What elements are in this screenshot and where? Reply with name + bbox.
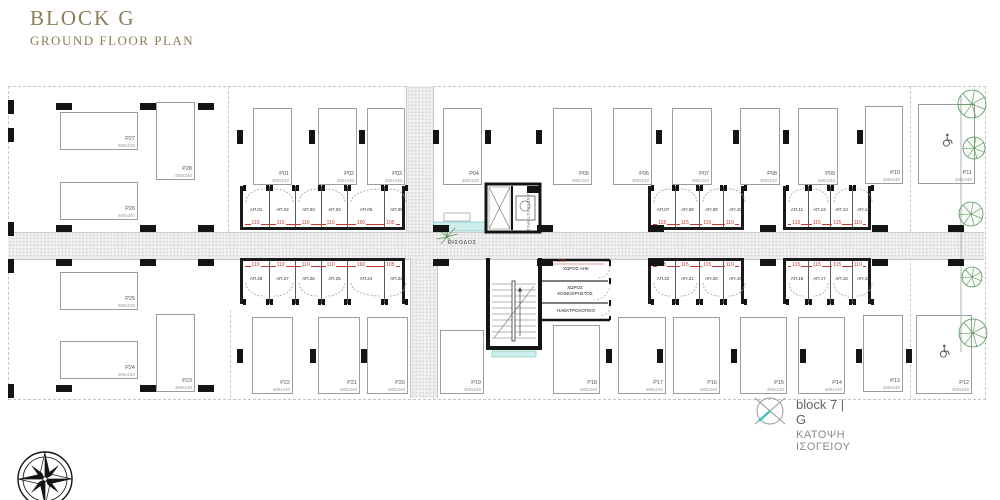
column-mark [8,100,14,114]
column-mark [309,130,315,144]
column-mark [198,259,214,266]
room-label-electrical: ΗΛΕΚΤΡΟΛΟΓΕΙΟ [541,308,611,314]
column-mark [856,349,862,363]
column-mark [733,130,739,144]
column-mark [433,259,449,266]
room-label-ahk: ΧΩΡΟΣ ΑΗΚ [544,266,608,272]
core-dimension: 240 [558,258,566,263]
column-mark [537,225,553,232]
column-mark [606,349,612,363]
column-mark [140,103,156,110]
column-mark [948,225,964,232]
column-mark [657,349,663,363]
column-mark [8,384,14,398]
column-mark [760,259,776,266]
column-mark [140,225,156,232]
column-mark [310,349,316,363]
entrance-label: ΕΙΣΟΔΟΣ [448,240,477,246]
column-mark [857,130,863,144]
column-mark [361,349,367,363]
column-mark [198,225,214,232]
column-mark [140,385,156,392]
column-mark [198,385,214,392]
column-mark [648,259,664,266]
elevator-label: ΑΝΕΛΚΥΣΤΗΡΑΣ [526,194,531,232]
column-mark [198,103,214,110]
column-mark [783,130,789,144]
column-mark [872,225,888,232]
column-mark [140,259,156,266]
column-mark [56,225,72,232]
column-mark [433,225,449,232]
column-mark [872,259,888,266]
room-label-common: ΧΩΡΟΣ ΚΟΙΝΟΧΡΗΣΤΟΣ [549,285,601,296]
column-mark [648,225,664,232]
column-mark [8,259,14,273]
column-mark [906,349,912,363]
column-mark [56,385,72,392]
column-mark [8,222,14,236]
floor-plan-canvas: BLOCK G GROUND FLOOR PLAN [0,0,1000,500]
column-mark [56,259,72,266]
column-mark [656,130,662,144]
column-mark [237,130,243,144]
column-mark [536,130,542,144]
column-mark [8,128,14,142]
stair-teal-strip [492,351,536,357]
column-mark [237,349,243,363]
column-mark [359,130,365,144]
column-mark [56,103,72,110]
column-mark [948,259,964,266]
column-mark [433,130,439,144]
stair-block-wall [486,258,490,350]
column-mark [485,130,491,144]
column-mark [800,349,806,363]
column-mark [731,349,737,363]
column-mark [760,225,776,232]
column-mark [537,259,553,266]
